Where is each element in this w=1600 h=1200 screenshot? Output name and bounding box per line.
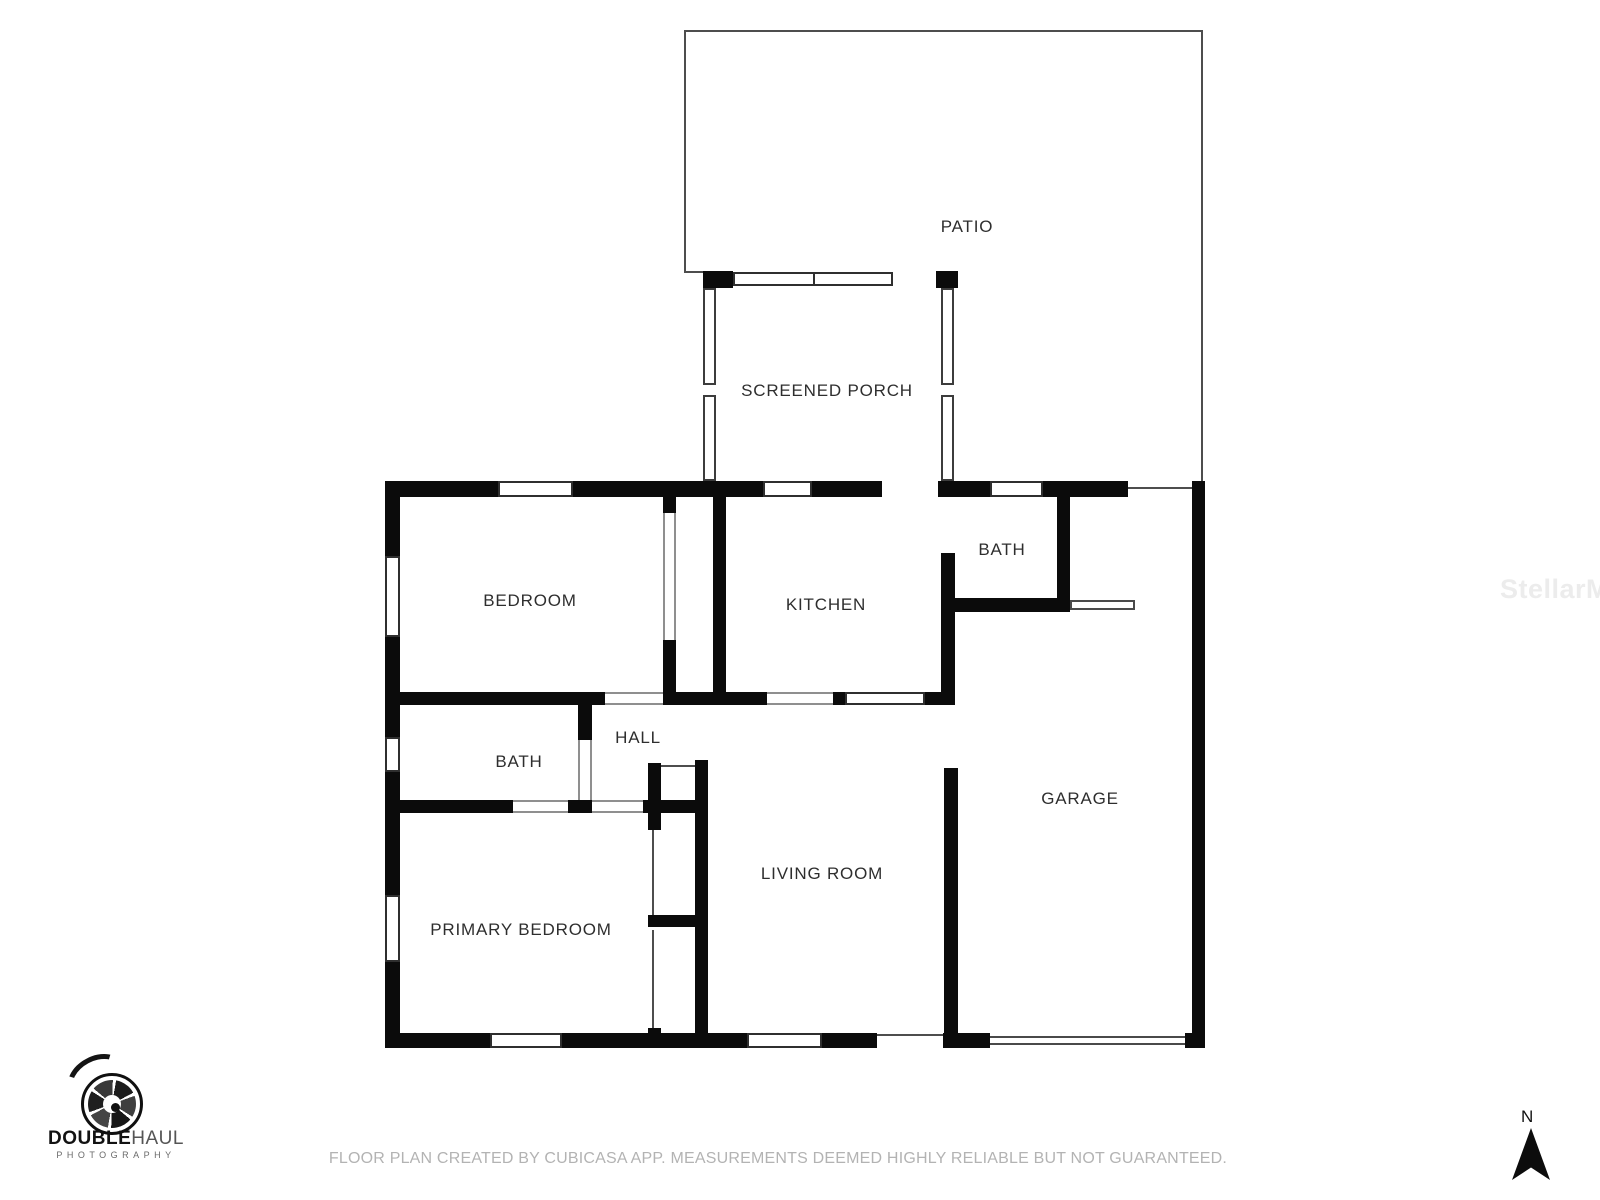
logo-wordmark: DOUBLEHAUL — [40, 1128, 192, 1150]
wall-segment — [573, 481, 763, 497]
opening — [767, 692, 833, 705]
opening — [605, 692, 663, 705]
window — [747, 1033, 822, 1048]
wall-segment — [1043, 481, 1128, 497]
wall-segment — [695, 760, 708, 1037]
wall-segment — [1057, 497, 1070, 598]
window — [498, 481, 573, 497]
wall-segment — [663, 640, 676, 693]
room-label-living-room: LIVING ROOM — [761, 864, 883, 884]
room-label-bedroom: BEDROOM — [483, 591, 576, 611]
wall-segment — [648, 915, 708, 927]
room-label-kitchen: KITCHEN — [786, 595, 866, 615]
wall-segment — [812, 481, 882, 497]
open-door-leaf — [1070, 600, 1135, 610]
wall-segment — [385, 637, 400, 737]
opening — [513, 800, 568, 813]
window — [990, 481, 1043, 497]
footer-disclaimer: FLOOR PLAN CREATED BY CUBICASA APP. MEAS… — [329, 1150, 1227, 1168]
patio-outline-left — [684, 30, 686, 273]
wall-segment — [713, 481, 726, 705]
window — [763, 481, 812, 497]
wall-segment — [703, 271, 733, 288]
opening-line — [877, 1034, 943, 1036]
mls-watermark: StellarMLS — [1500, 574, 1600, 605]
wall-segment — [385, 692, 605, 705]
wall-segment — [936, 271, 958, 288]
wall-segment — [568, 800, 592, 813]
wall-segment — [943, 1033, 990, 1048]
opening — [663, 513, 676, 640]
wall-segment — [944, 768, 958, 1033]
window — [385, 737, 400, 772]
opening-line — [1128, 487, 1192, 489]
patio-outline-top — [684, 30, 1203, 32]
pass-through-window — [845, 692, 925, 705]
patio-outline-right — [1201, 30, 1203, 490]
window-divider — [813, 273, 815, 285]
window — [733, 272, 893, 286]
room-label-bath-lower: BATH — [495, 752, 542, 772]
wall-segment — [648, 1028, 661, 1037]
compass-north-arrow-icon — [1512, 1128, 1550, 1180]
floor-plan-canvas: PATIO SCREENED PORCH BEDROOM KITCHEN BAT… — [0, 0, 1600, 1200]
wall-segment — [1185, 1033, 1205, 1048]
compass-north-label: N — [1521, 1107, 1533, 1127]
logo-subtitle: PHOTOGRAPHY — [40, 1150, 192, 1160]
wall-segment — [1192, 481, 1205, 1048]
camera-aperture-icon — [81, 1073, 143, 1135]
room-label-bath-upper: BATH — [978, 540, 1025, 560]
room-label-screened-porch: SCREENED PORCH — [741, 381, 913, 401]
opening — [592, 800, 643, 813]
closet-line — [660, 765, 695, 767]
window — [490, 1033, 562, 1048]
aperture-dot-icon — [111, 1103, 120, 1112]
closet-door-line — [652, 830, 654, 915]
room-label-primary-bedroom: PRIMARY BEDROOM — [430, 920, 611, 940]
window — [385, 895, 400, 962]
screen-sash — [703, 383, 716, 397]
logo-secondary-text: HAUL — [131, 1128, 184, 1149]
garage-door — [990, 1036, 1190, 1045]
room-label-garage: GARAGE — [1041, 789, 1119, 809]
logo-primary-text: DOUBLE — [48, 1128, 131, 1149]
wall-segment — [385, 772, 400, 895]
wall-segment — [385, 481, 498, 497]
wall-segment — [385, 800, 513, 813]
room-label-patio: PATIO — [941, 217, 994, 237]
screen-sash — [941, 383, 954, 397]
opening — [578, 740, 592, 800]
wall-segment — [385, 1033, 490, 1048]
wall-segment — [385, 481, 400, 556]
wall-segment — [938, 481, 990, 497]
wall-segment — [941, 598, 1070, 612]
wall-segment — [663, 497, 676, 513]
wall-segment — [578, 705, 592, 740]
wall-segment — [822, 1033, 877, 1048]
window — [385, 556, 400, 637]
wall-segment — [941, 553, 955, 700]
wall-segment — [663, 692, 767, 705]
wall-segment — [648, 763, 661, 830]
closet-door-line — [652, 930, 654, 1028]
wall-segment — [833, 692, 845, 705]
room-label-hall: HALL — [615, 728, 661, 748]
